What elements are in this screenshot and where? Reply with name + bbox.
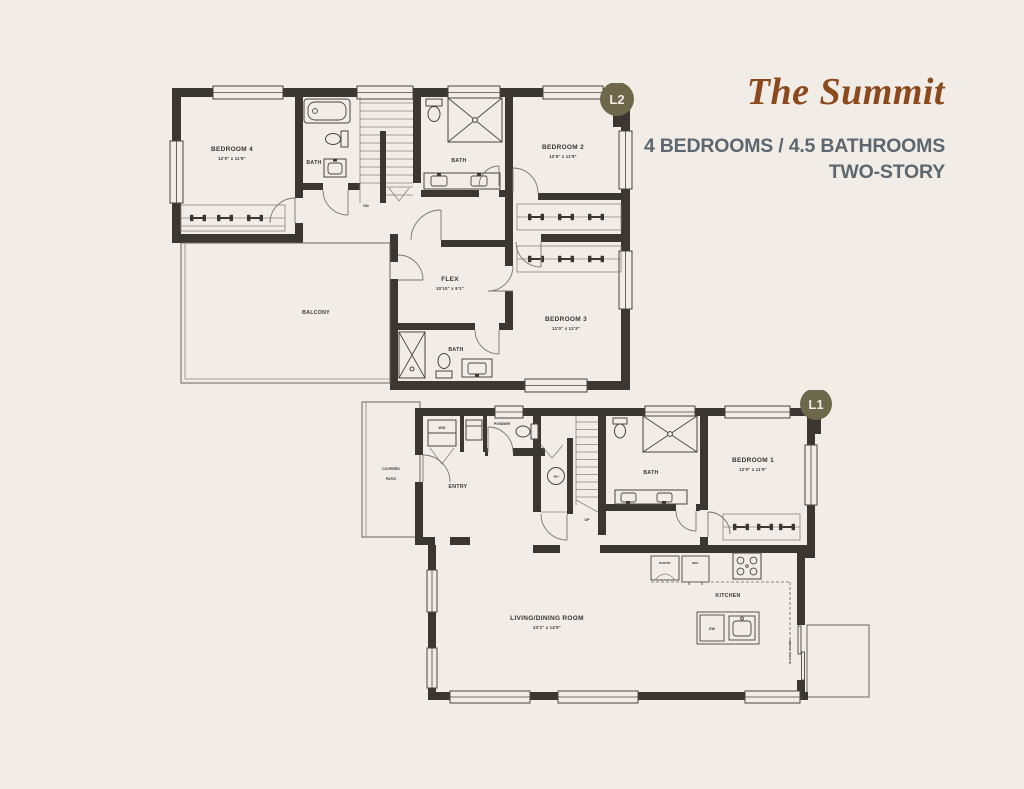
- room-dims-bedroom4: 12'0" x 11'9": [218, 156, 246, 161]
- hanger-icon: [558, 214, 574, 220]
- window-icon: [725, 406, 790, 418]
- vanity-icon: [324, 159, 346, 177]
- window-icon: [448, 86, 500, 99]
- l2-stairs-icon: [360, 97, 413, 203]
- washer-dryer-label: W/D: [439, 426, 446, 430]
- fridge-icon: REF.: [682, 556, 709, 585]
- washer-dryer-icon: W/D: [428, 420, 456, 464]
- window-icon: [357, 86, 413, 99]
- room-label-bedroom3: BEDROOM 3: [545, 316, 587, 323]
- toilet-icon: [426, 99, 442, 122]
- pantry-cabinet: PANTRY: [651, 556, 679, 580]
- page-title: The Summit: [644, 70, 945, 114]
- sliding-doors-label: SLIDING DOORS: [788, 640, 792, 664]
- room-label-flex: FLEX: [441, 276, 459, 283]
- level1-badge: L1: [800, 390, 832, 434]
- window-icon: [427, 648, 437, 688]
- room-dims-flex: 10'10" x 9'1": [436, 286, 464, 291]
- room-label-bedroom4: BEDROOM 4: [211, 146, 253, 153]
- hanger-icon: [588, 256, 604, 262]
- toilet-icon: [436, 354, 452, 379]
- room-label-balcony: BALCONY: [302, 310, 330, 316]
- stairs-label-up: UP: [585, 518, 591, 522]
- hanger-icon: [247, 215, 263, 221]
- room-label-bedroom1: BEDROOM 1: [732, 457, 774, 464]
- room-label-bath: BATH: [643, 470, 658, 476]
- sink-icon: [466, 420, 482, 440]
- window-icon: [170, 141, 183, 203]
- dishwasher-label: DW: [709, 627, 716, 631]
- room-dims-living: 23'2" x 14'9": [533, 625, 561, 630]
- hanger-icon: [779, 524, 795, 530]
- closet-bedroom3: [517, 246, 621, 272]
- window-icon: [558, 691, 638, 703]
- badge-label: L2: [609, 92, 624, 107]
- kitchen-fixtures: PANTRY REF. DW: [651, 553, 790, 645]
- toilet-icon: [326, 131, 349, 147]
- window-icon: [805, 445, 817, 505]
- room-label-bath: BATH: [451, 158, 466, 164]
- stairs-label-dn: DN: [363, 204, 369, 208]
- vanity-icon: [462, 359, 492, 377]
- room-dims-bedroom3: 12'0" x 12'3": [552, 326, 580, 331]
- window-icon: [495, 406, 523, 418]
- room-label-covered-patio: COVERED: [382, 467, 400, 471]
- room-label-covered-patio: PATIO: [386, 477, 397, 481]
- fridge-label: REF.: [692, 561, 699, 565]
- level1-floorplan: WH W/D: [355, 390, 880, 705]
- spec-bed-bath: 4 BEDROOMS / 4.5 BATHROOMS: [644, 134, 945, 160]
- pantry-label: PANTRY: [659, 561, 671, 565]
- room-label-kitchen: KITCHEN: [715, 593, 740, 599]
- shower-icon: [643, 416, 697, 452]
- toilet-icon: [516, 424, 538, 439]
- hanger-icon: [217, 215, 233, 221]
- room-dims-bedroom2: 12'6" x 11'9": [549, 154, 577, 159]
- room-label-entry: ENTRY: [449, 484, 468, 490]
- room-label-powder: POWDER: [494, 422, 511, 426]
- deck-outline: [807, 625, 869, 697]
- room-label-bedroom2: BEDROOM 2: [542, 144, 584, 151]
- water-heater-label: WH: [554, 475, 559, 479]
- sliding-door-icon: [798, 626, 805, 680]
- hanger-icon: [757, 524, 773, 530]
- room-dims-bedroom1: 12'0" x 11'9": [739, 467, 767, 472]
- kitchen-island: DW: [697, 612, 759, 644]
- spec-stories: TWO-STORY: [644, 160, 945, 186]
- hanger-icon: [190, 215, 206, 221]
- badge-label: L1: [808, 397, 823, 412]
- hanger-icon: [733, 524, 749, 530]
- double-vanity-icon: [615, 490, 687, 504]
- toilet-icon: [613, 418, 627, 438]
- shower-icon: [399, 332, 425, 378]
- window-icon: [745, 691, 800, 703]
- window-icon: [619, 131, 632, 189]
- header-block: The Summit 4 BEDROOMS / 4.5 BATHROOMS TW…: [644, 70, 945, 185]
- window-icon: [543, 86, 603, 99]
- hanger-icon: [558, 256, 574, 262]
- double-vanity-icon: [424, 173, 500, 189]
- plan-specs: 4 BEDROOMS / 4.5 BATHROOMS TWO-STORY: [644, 134, 945, 185]
- shower-icon: [448, 98, 502, 142]
- range-icon: [733, 553, 761, 579]
- closet-bedroom1: [723, 514, 800, 540]
- hanger-icon: [588, 214, 604, 220]
- balcony-outline: [181, 243, 390, 383]
- room-label-bath: BATH: [448, 347, 463, 353]
- hanger-icon: [528, 256, 544, 262]
- sink-icon: [729, 616, 755, 640]
- window-icon: [427, 570, 437, 612]
- tub-icon: [304, 99, 350, 123]
- window-icon: [213, 86, 283, 99]
- room-label-living: LIVING/DINING ROOM: [510, 615, 584, 622]
- room-label-bath: BATH: [306, 160, 321, 166]
- hanger-icon: [528, 214, 544, 220]
- window-icon: [450, 691, 530, 703]
- closet-bedroom2: [517, 204, 621, 230]
- water-heater-icon: WH: [548, 468, 565, 485]
- closet-bedroom4: [181, 205, 285, 231]
- level2-floorplan: BEDROOM 4 12'0" x 11'9" BATH BATH BEDROO…: [165, 83, 637, 395]
